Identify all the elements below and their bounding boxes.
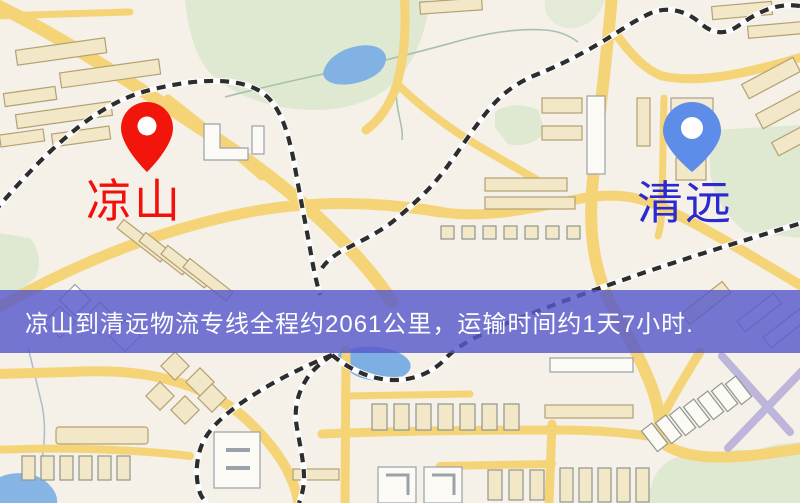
origin-pin-icon — [121, 102, 173, 172]
route-info-banner: 凉山到清远物流专线全程约2061公里，运输时间约1天7小时. — [0, 290, 800, 353]
map-screenshot: 凉山 清远 凉山到清远物流专线全程约2061公里，运输时间约1天7小时. — [0, 0, 800, 503]
destination-label: 清远 — [637, 180, 733, 226]
route-info-text: 凉山到清远物流专线全程约2061公里，运输时间约1天7小时. — [0, 304, 694, 339]
origin-label: 凉山 — [86, 178, 182, 224]
map-background — [0, 0, 800, 503]
destination-pin-icon — [663, 102, 721, 172]
